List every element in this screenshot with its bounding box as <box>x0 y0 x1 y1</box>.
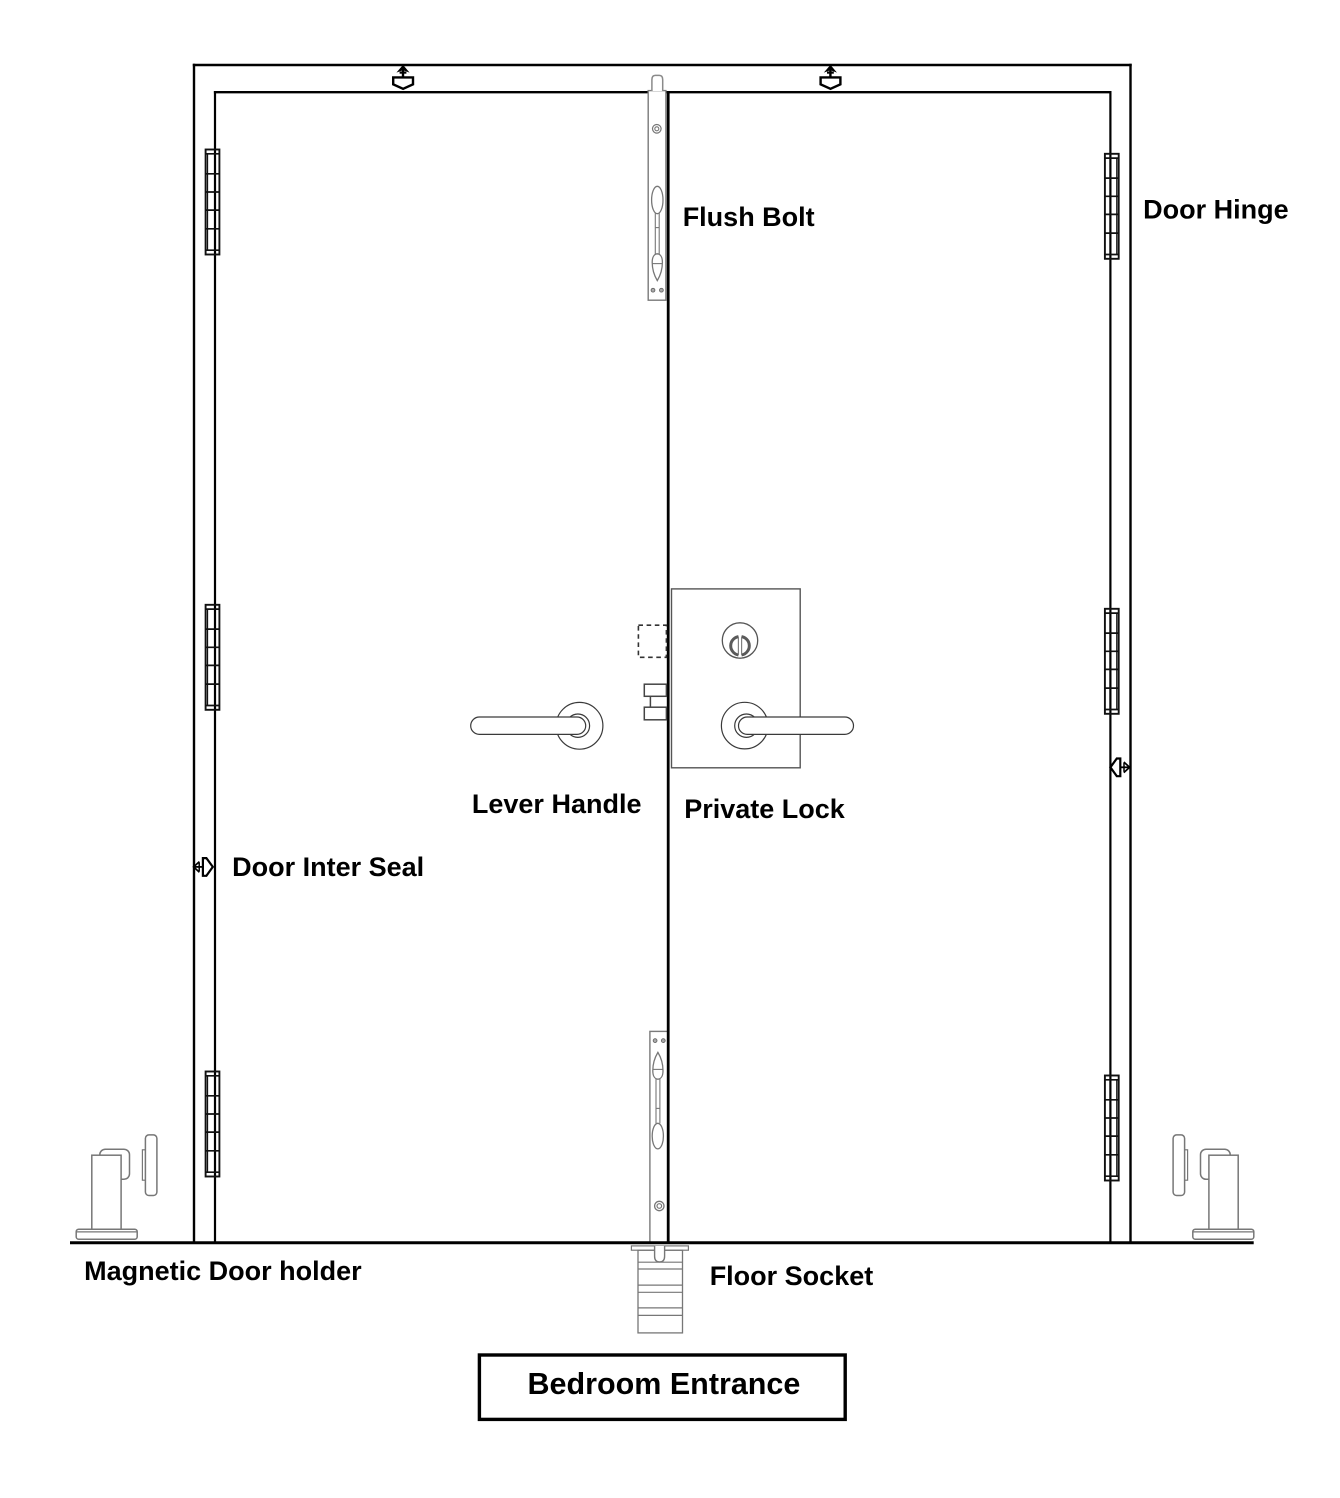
svg-text:Private Lock: Private Lock <box>684 794 846 824</box>
svg-text:Flush Bolt: Flush Bolt <box>683 202 815 232</box>
svg-text:Lever Handle: Lever Handle <box>472 789 642 819</box>
svg-text:Floor Socket: Floor Socket <box>710 1261 874 1291</box>
svg-text:Door Hinge: Door Hinge <box>1143 194 1289 224</box>
svg-text:Bedroom Entrance: Bedroom Entrance <box>528 1367 801 1401</box>
svg-text:Door Inter Seal: Door Inter Seal <box>232 852 424 882</box>
svg-text:Magnetic Door holder: Magnetic Door holder <box>84 1256 362 1286</box>
